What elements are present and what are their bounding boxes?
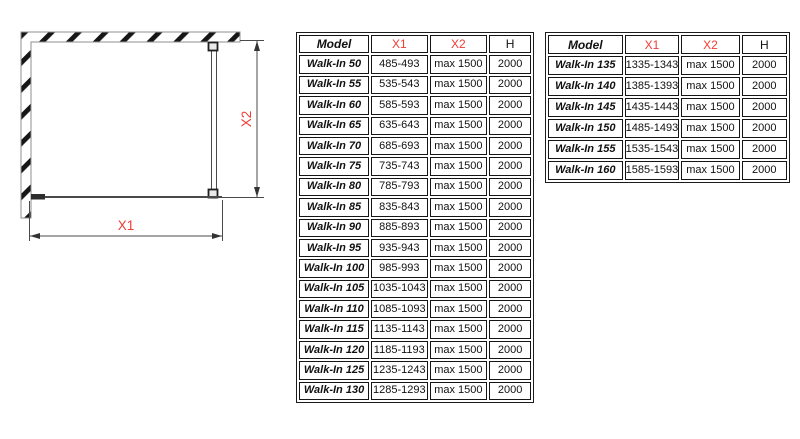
value-cell: 1485-1493 [625,119,680,138]
spec-sheet: { "colors": { "accent_red": "#f13c35" },… [0,0,800,439]
plan-drawing-svg: X1 X2 [0,0,300,270]
value-cell: 2000 [489,320,531,338]
value-cell: 1285-1293 [371,382,428,400]
value-cell: 2000 [489,300,531,318]
table-row: Walk-In 95935-943max 15002000 [299,239,531,257]
value-cell: max 1500 [430,96,488,114]
value-cell: 2000 [489,259,531,277]
value-cell: max 1500 [681,119,739,138]
value-cell: 735-743 [371,157,428,175]
table-row: Walk-In 60585-593max 15002000 [299,96,531,114]
value-cell: 2000 [489,361,531,379]
panel-connector-top [209,43,218,51]
value-cell: max 1500 [430,157,488,175]
value-cell: max 1500 [430,280,488,298]
value-cell: max 1500 [430,239,488,257]
table-row: Walk-In 1051035-1043max 15002000 [299,280,531,298]
model-cell: Walk-In 100 [299,259,369,277]
model-cell: Walk-In 95 [299,239,369,257]
value-cell: max 1500 [430,320,488,338]
value-cell: 2000 [742,161,787,180]
model-cell: Walk-In 140 [548,77,623,96]
value-cell: 2000 [489,341,531,359]
table-row: Walk-In 100985-993max 15002000 [299,259,531,277]
value-cell: 685-693 [371,137,428,155]
value-cell: 2000 [489,382,531,400]
value-cell: 2000 [742,119,787,138]
value-cell: 2000 [742,77,787,96]
model-cell: Walk-In 90 [299,219,369,237]
value-cell: 1085-1093 [371,300,428,318]
table-row: Walk-In 50485-493max 15002000 [299,55,531,73]
table-row: Walk-In 90885-893max 15002000 [299,219,531,237]
walkin-plan-diagram: X1 X2 [0,0,300,270]
value-cell: 1235-1243 [371,361,428,379]
table-row: Walk-In 1501485-1493max 15002000 [548,119,787,138]
column-header: H [489,35,531,53]
wall-hatch [21,32,240,218]
header-row: ModelX1X2H [548,35,787,54]
model-cell: Walk-In 80 [299,178,369,196]
column-header: Model [299,35,369,53]
column-header: H [742,35,787,54]
glass-panel-side [212,42,217,198]
table-row: Walk-In 1101085-1093max 15002000 [299,300,531,318]
value-cell: 785-793 [371,178,428,196]
value-cell: 1385-1393 [625,77,680,96]
table-row: Walk-In 55535-543max 15002000 [299,76,531,94]
value-cell: max 1500 [681,98,739,117]
value-cell: max 1500 [430,341,488,359]
value-cell: 585-593 [371,96,428,114]
model-cell: Walk-In 55 [299,76,369,94]
x2-arrow-bottom [254,187,260,197]
value-cell: 835-843 [371,198,428,216]
value-cell: 2000 [489,137,531,155]
x2-label: X2 [239,111,254,128]
value-cell: 2000 [489,280,531,298]
value-cell: 1135-1143 [371,320,428,338]
value-cell: 2000 [489,198,531,216]
value-cell: 2000 [489,96,531,114]
value-cell: 2000 [489,117,531,135]
walkin-table-50-130: ModelX1X2H Walk-In 50485-493max 15002000… [296,32,534,403]
column-header: X1 [371,35,428,53]
value-cell: max 1500 [681,56,739,75]
table-row: Walk-In 65635-643max 15002000 [299,117,531,135]
table-row: Walk-In 1601585-1593max 15002000 [548,161,787,180]
value-cell: max 1500 [681,140,739,159]
value-cell: max 1500 [681,161,739,180]
table-row: Walk-In 1201185-1193max 15002000 [299,341,531,359]
table-row: Walk-In 1451435-1443max 15002000 [548,98,787,117]
value-cell: max 1500 [430,55,488,73]
model-cell: Walk-In 115 [299,320,369,338]
walkin-table-135-160: ModelX1X2H Walk-In 1351335-1343max 15002… [545,32,790,183]
value-cell: 1185-1193 [371,341,428,359]
column-header: X2 [681,35,739,54]
x1-label: X1 [118,218,135,233]
model-cell: Walk-In 70 [299,137,369,155]
model-cell: Walk-In 150 [548,119,623,138]
value-cell: max 1500 [430,76,488,94]
value-cell: max 1500 [681,77,739,96]
model-cell: Walk-In 110 [299,300,369,318]
value-cell: 1335-1343 [625,56,680,75]
model-cell: Walk-In 120 [299,341,369,359]
value-cell: 1035-1043 [371,280,428,298]
model-cell: Walk-In 130 [299,382,369,400]
table-row: Walk-In 1251235-1243max 15002000 [299,361,531,379]
header-row: ModelX1X2H [299,35,531,53]
column-header: Model [548,35,623,54]
model-cell: Walk-In 85 [299,198,369,216]
table-row: Walk-In 1151135-1143max 15002000 [299,320,531,338]
value-cell: max 1500 [430,382,488,400]
column-header: X1 [625,35,680,54]
value-cell: 2000 [489,157,531,175]
x2-arrow-top [254,41,260,51]
value-cell: 1585-1593 [625,161,680,180]
value-cell: 485-493 [371,55,428,73]
table-row: Walk-In 70685-693max 15002000 [299,137,531,155]
value-cell: 2000 [489,55,531,73]
value-cell: 1535-1543 [625,140,680,159]
x1-arrow-left [30,233,40,239]
value-cell: max 1500 [430,300,488,318]
table-row: Walk-In 1401385-1393max 15002000 [548,77,787,96]
value-cell: 635-643 [371,117,428,135]
model-cell: Walk-In 65 [299,117,369,135]
value-cell: 935-943 [371,239,428,257]
value-cell: 2000 [742,140,787,159]
table-row: Walk-In 85835-843max 15002000 [299,198,531,216]
value-cell: max 1500 [430,178,488,196]
value-cell: 535-543 [371,76,428,94]
x1-arrow-right [212,233,222,239]
value-cell: 2000 [742,56,787,75]
model-cell: Walk-In 135 [548,56,623,75]
table-row: Walk-In 1351335-1343max 15002000 [548,56,787,75]
table-row: Walk-In 80785-793max 15002000 [299,178,531,196]
value-cell: max 1500 [430,198,488,216]
value-cell: 2000 [489,76,531,94]
value-cell: 2000 [489,178,531,196]
table-row: Walk-In 1551535-1543max 15002000 [548,140,787,159]
value-cell: max 1500 [430,259,488,277]
model-cell: Walk-In 155 [548,140,623,159]
table-row: Walk-In 75735-743max 15002000 [299,157,531,175]
value-cell: 985-993 [371,259,428,277]
wall-bracket [31,194,45,200]
value-cell: max 1500 [430,219,488,237]
column-header: X2 [430,35,488,53]
model-cell: Walk-In 160 [548,161,623,180]
model-cell: Walk-In 125 [299,361,369,379]
value-cell: max 1500 [430,137,488,155]
model-cell: Walk-In 105 [299,280,369,298]
value-cell: max 1500 [430,361,488,379]
value-cell: 1435-1443 [625,98,680,117]
model-cell: Walk-In 75 [299,157,369,175]
value-cell: 2000 [489,239,531,257]
model-cell: Walk-In 50 [299,55,369,73]
table-row: Walk-In 1301285-1293max 15002000 [299,382,531,400]
value-cell: 2000 [489,219,531,237]
model-cell: Walk-In 60 [299,96,369,114]
model-cell: Walk-In 145 [548,98,623,117]
value-cell: 885-893 [371,219,428,237]
value-cell: 2000 [742,98,787,117]
value-cell: max 1500 [430,117,488,135]
